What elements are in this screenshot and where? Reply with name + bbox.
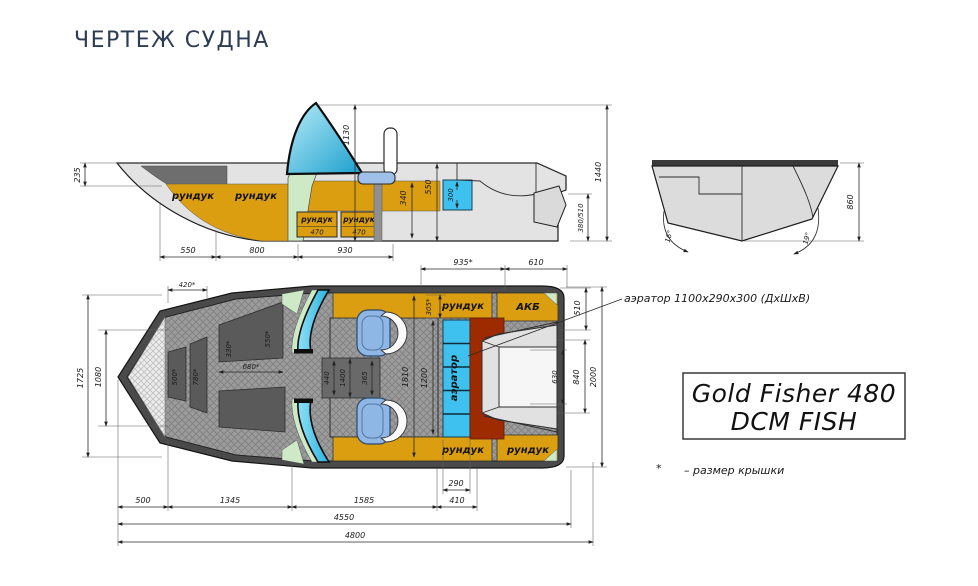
dim-4800: 4800 <box>345 531 365 540</box>
dim-500: 500 <box>135 496 150 505</box>
locker-box1-size: 470 <box>310 229 324 237</box>
dim-510: 510 <box>573 300 582 315</box>
locker-box2-label: рундук <box>342 215 375 224</box>
dim-1080: 1080 <box>94 367 103 387</box>
dim-300: 300 <box>447 188 455 202</box>
seat-top <box>357 310 407 356</box>
model-name-line1: Gold Fisher 480 <box>692 379 896 408</box>
dim-1130: 1130 <box>342 125 351 145</box>
locker-box1-label: рундук <box>300 215 333 224</box>
plan-locker-br-label: рундук <box>506 445 549 456</box>
side-locker-label-1: рундук <box>171 191 214 202</box>
model-name-line2: DCM FISH <box>731 407 858 436</box>
footnote-mark: * <box>656 462 662 475</box>
locker-box2-size: 470 <box>352 229 366 237</box>
dim-2000: 2000 <box>589 367 598 387</box>
dim-550b: 550 <box>180 246 195 255</box>
dim-630: 630 <box>551 370 559 384</box>
aerator-note: аэратор 1100х290х300 (ДхШхВ) <box>624 292 810 305</box>
dim-290: 290 <box>448 479 463 488</box>
dim-1345: 1345 <box>220 496 240 505</box>
seat-bottom <box>357 398 407 444</box>
aerator-label: аэратор <box>449 355 460 401</box>
dim-935: 935* <box>453 258 472 267</box>
transom-view: 860 16° 19° <box>652 160 864 254</box>
dim-1200: 1200 <box>420 368 429 388</box>
dim-19deg: 19° <box>802 231 813 245</box>
side-view: рундук 470 рундук 470 <box>73 103 612 261</box>
plan-locker-bl-label: рундук <box>441 445 484 456</box>
dim-380-510: 380/510 <box>577 203 585 233</box>
dim-305: 305* <box>425 298 433 315</box>
transom-top-band <box>652 160 838 166</box>
dim-4550: 4550 <box>334 513 354 522</box>
dim-500h: 500* <box>171 368 179 385</box>
plan-battery-label: АКБ <box>515 302 540 313</box>
footnote-text: – размер крышки <box>684 464 784 477</box>
dim-365: 365 <box>361 371 369 385</box>
dim-420: 420* <box>179 281 196 289</box>
dim-330: 330* <box>225 340 233 357</box>
dim-235: 235 <box>73 167 82 182</box>
dim-1725: 1725 <box>76 368 85 388</box>
dim-440: 440 <box>323 371 331 385</box>
dim-1585: 1585 <box>354 496 374 505</box>
dim-1440: 1440 <box>594 162 603 182</box>
dim-340: 340 <box>399 190 408 205</box>
dim-860: 860 <box>846 194 855 209</box>
dim-550h: 550* <box>264 330 272 347</box>
side-locker-box-1: рундук 470 <box>297 212 337 237</box>
dim-550v: 550 <box>424 179 433 194</box>
side-locker-label-2: рундук <box>234 191 277 202</box>
drawing-page: ЧЕРТЕЖ СУДНА <box>0 0 978 586</box>
dim-800: 800 <box>249 246 264 255</box>
dim-1400: 1400 <box>339 369 347 387</box>
dim-610: 610 <box>528 258 543 267</box>
side-mid-lockers <box>300 181 440 211</box>
side-locker-box-2: рундук 470 <box>341 212 378 237</box>
dim-1810: 1810 <box>401 367 410 387</box>
dim-840: 840 <box>572 369 581 384</box>
dim-780: 780* <box>192 368 200 385</box>
motor-well <box>482 322 557 432</box>
plan-locker-top-label: рундук <box>441 301 484 312</box>
boat-technical-drawing: рундук 470 рундук 470 <box>0 0 978 586</box>
model-plate: Gold Fisher 480 DCM FISH <box>683 373 905 439</box>
footnote: * – размер крышки <box>656 462 784 477</box>
dim-930: 930 <box>337 246 352 255</box>
dim-680: 680* <box>243 363 260 371</box>
dim-410: 410 <box>449 496 464 505</box>
dim-16deg: 16° <box>664 229 675 243</box>
